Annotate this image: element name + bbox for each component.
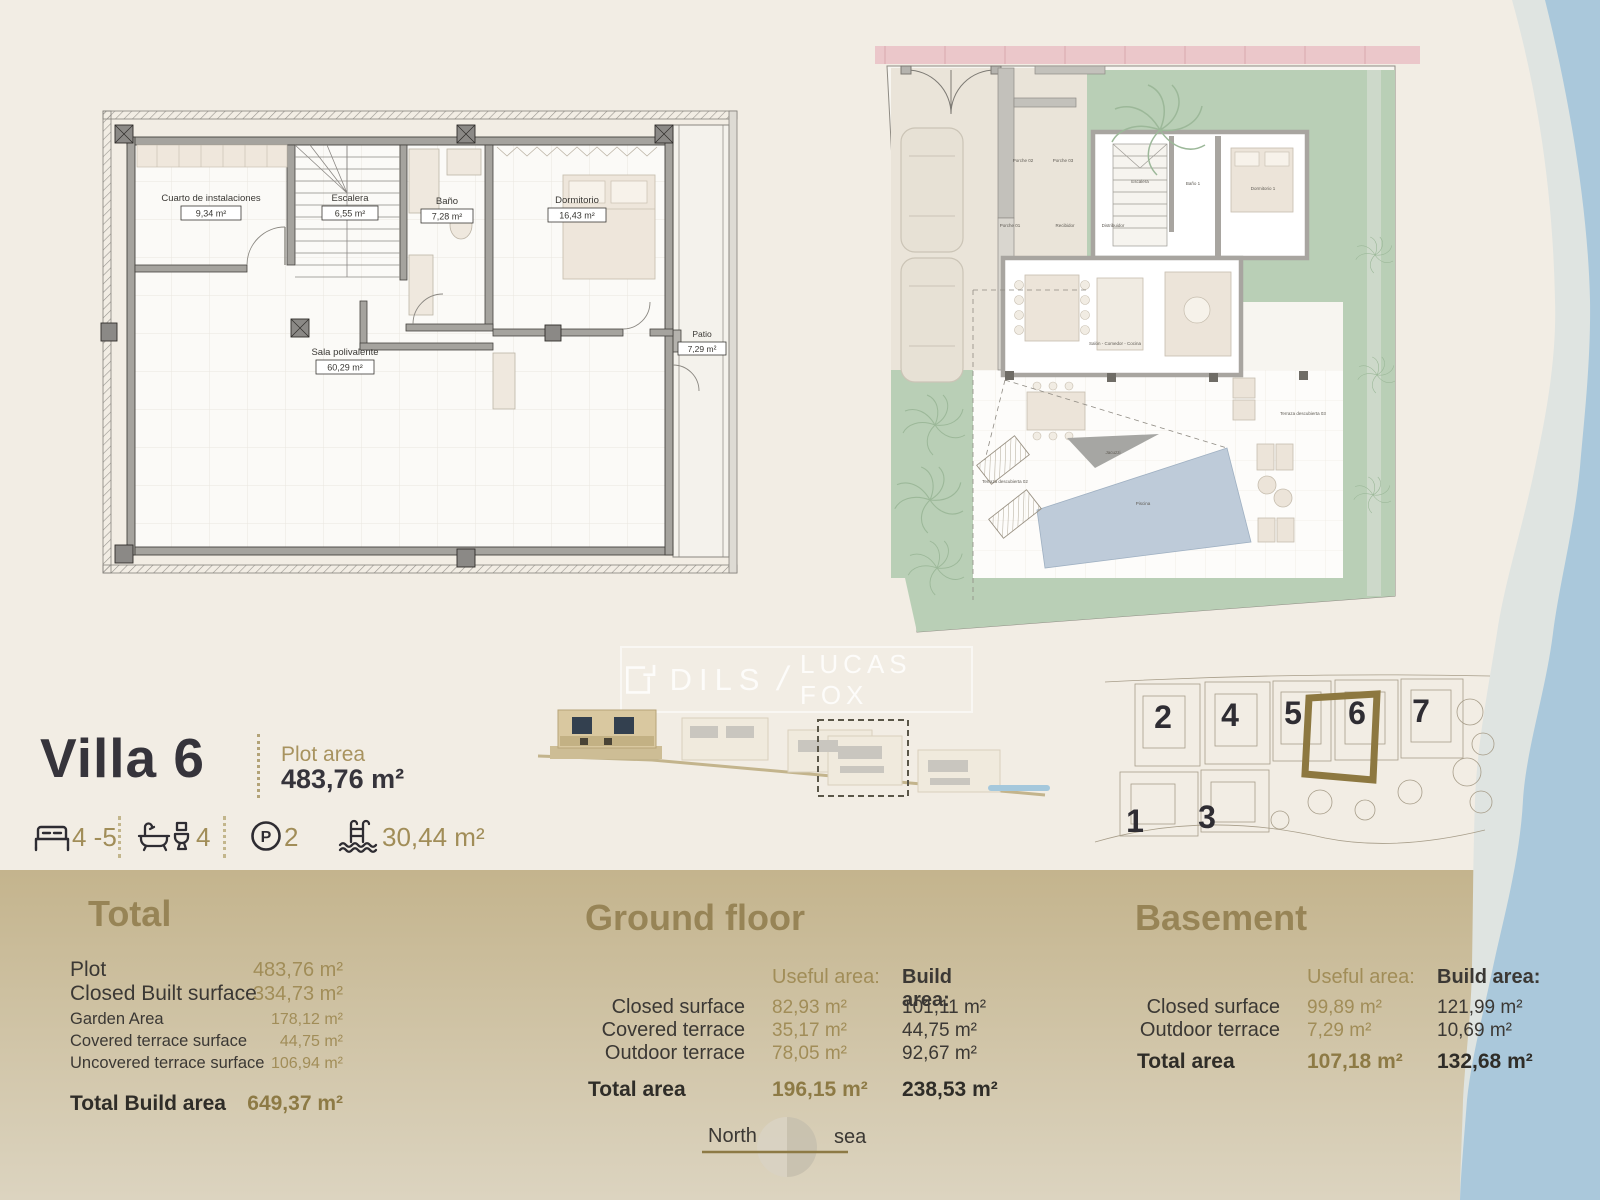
total-row-value: 334,73 m² — [208, 983, 343, 1006]
patio-area — [667, 125, 729, 557]
build-value: 121,99 m² — [1437, 997, 1523, 1019]
total-build-label: Total Build area — [70, 1092, 226, 1116]
svg-text:Piscina: Piscina — [1136, 501, 1151, 506]
svg-text:Escalera: Escalera — [332, 193, 370, 204]
total-row-value: 44,75 m² — [208, 1033, 343, 1051]
svg-text:Cuarto de instalaciones: Cuarto de instalaciones — [161, 193, 261, 204]
svg-text:6: 6 — [1348, 695, 1366, 731]
useful-value: 78,05 m² — [772, 1043, 847, 1065]
baths-value: 4 — [196, 822, 210, 853]
total-row-value: 483,76 m² — [208, 959, 343, 982]
svg-text:Baño: Baño — [436, 196, 458, 207]
brochure-page: Cuarto de instalaciones 9,34 m² Escalera… — [0, 0, 1600, 1200]
villas-elevation — [520, 668, 1050, 803]
svg-text:Porche 01: Porche 01 — [1000, 223, 1021, 228]
svg-text:4: 4 — [1221, 697, 1239, 733]
useful-value: 82,93 m² — [772, 997, 847, 1019]
site-plan: 2 4 5 6 7 1 3 — [1065, 652, 1510, 852]
total-area-label: Total area — [588, 1078, 686, 1102]
svg-text:60,29 m²: 60,29 m² — [327, 363, 363, 373]
total-build-value: 132,68 m² — [1437, 1050, 1533, 1074]
corridor-cabinet — [493, 353, 515, 409]
total-build-value: 238,53 m² — [902, 1078, 998, 1102]
villa6-highlight-box — [1305, 694, 1377, 780]
total-row-label: Plot — [70, 958, 106, 982]
road-strip — [875, 46, 1420, 64]
svg-text:7,28 m²: 7,28 m² — [432, 212, 463, 222]
svg-text:Terraza descubierta 03: Terraza descubierta 03 — [1280, 411, 1326, 416]
svg-text:Baño 1: Baño 1 — [1186, 181, 1201, 186]
svg-text:Porche 03: Porche 03 — [1053, 158, 1074, 163]
total-build-value: 649,37 m² — [208, 1092, 343, 1116]
row-label: Closed surface — [585, 996, 745, 1019]
svg-text:Distribuidor: Distribuidor — [1102, 223, 1125, 228]
total-summary: Total Plot 483,76 m² Closed Built surfac… — [68, 885, 368, 1145]
room-label-sala: Sala polivalente 60,29 m² — [311, 347, 378, 374]
garden-path — [1367, 70, 1381, 596]
feature-divider-1 — [118, 816, 121, 858]
compass-north-label: North — [708, 1125, 757, 1148]
compass: North sea — [672, 1108, 882, 1186]
beds-value: 4 -5 — [72, 822, 117, 853]
total-useful-value: 107,18 m² — [1307, 1050, 1403, 1074]
room-label-dormitorio: Dormitorio 16,43 m² — [548, 195, 606, 222]
svg-text:P: P — [261, 829, 272, 846]
plot-area-value: 483,76 m² — [281, 764, 404, 795]
ground-floor-summary: Ground floor Useful area: Build area: Cl… — [585, 890, 1005, 1120]
compass-sea-label: sea — [834, 1126, 866, 1149]
svg-text:7,29 m²: 7,29 m² — [688, 344, 717, 354]
ground-floor-heading: Ground floor — [585, 897, 805, 939]
page-title: Villa 6 — [40, 726, 205, 790]
useful-value: 7,29 m² — [1307, 1020, 1371, 1042]
row-label: Closed surface — [1135, 996, 1280, 1019]
build-area-header: Build area: — [1437, 966, 1540, 989]
feature-divider-2 — [223, 816, 226, 858]
villa-solid — [550, 710, 662, 759]
row-label: Covered terrace — [585, 1019, 745, 1042]
svg-text:Jacuzzi: Jacuzzi — [1105, 450, 1120, 455]
build-value: 10,69 m² — [1437, 1020, 1512, 1042]
svg-text:2: 2 — [1154, 699, 1172, 735]
build-value: 44,75 m² — [902, 1020, 977, 1042]
svg-text:Dormitorio: Dormitorio — [555, 195, 599, 206]
svg-text:Terraza descubierta 02: Terraza descubierta 02 — [982, 479, 1028, 484]
total-row-value: 178,12 m² — [208, 1011, 343, 1029]
total-row-label: Garden Area — [70, 1010, 164, 1029]
villas-faint — [682, 718, 1000, 792]
total-area-label: Total area — [1137, 1050, 1235, 1074]
svg-text:Sala polivalente: Sala polivalente — [311, 347, 378, 358]
svg-text:Patio: Patio — [692, 329, 712, 339]
sea-water-mark — [988, 785, 1050, 791]
useful-value: 99,89 m² — [1307, 997, 1382, 1019]
basement-summary: Basement Useful area: Build area: Closed… — [1135, 890, 1555, 1110]
row-label: Outdoor terrace — [585, 1042, 745, 1065]
build-value: 92,67 m² — [902, 1043, 977, 1065]
ground-floor-plan: Porche 02 Porche 03 Porche 01 Recibidor … — [875, 40, 1420, 640]
basement-heading: Basement — [1135, 897, 1307, 939]
svg-text:Recibidor: Recibidor — [1055, 223, 1075, 228]
bed-icon — [33, 822, 71, 852]
total-heading: Total — [88, 893, 171, 935]
svg-text:Porche 02: Porche 02 — [1013, 158, 1034, 163]
parking-icon: P — [250, 820, 282, 852]
house-bedroom — [1231, 148, 1293, 212]
svg-text:5: 5 — [1284, 695, 1302, 731]
total-useful-value: 196,15 m² — [772, 1078, 868, 1102]
svg-text:1: 1 — [1126, 803, 1144, 839]
row-label: Outdoor terrace — [1135, 1019, 1280, 1042]
pool-value: 30,44 m² — [382, 822, 485, 853]
useful-area-header: Useful area: — [772, 966, 880, 989]
title-divider — [257, 734, 260, 798]
storage-shelves — [137, 145, 287, 167]
svg-text:7: 7 — [1412, 693, 1430, 729]
total-row-value: 106,94 m² — [208, 1055, 343, 1073]
svg-text:Dormitorio 1: Dormitorio 1 — [1251, 186, 1276, 191]
basement-floor-plan: Cuarto de instalaciones 9,34 m² Escalera… — [95, 105, 745, 580]
house-stairs — [1113, 144, 1167, 246]
parking-value: 2 — [284, 822, 298, 853]
pool-icon — [338, 818, 378, 854]
svg-text:Salón - Comedor - Cocina: Salón - Comedor - Cocina — [1089, 341, 1142, 346]
svg-text:Escalera: Escalera — [1131, 179, 1149, 184]
useful-area-header: Useful area: — [1307, 966, 1415, 989]
svg-text:3: 3 — [1198, 799, 1216, 835]
bath-icon — [137, 820, 191, 852]
svg-text:9,34 m²: 9,34 m² — [196, 209, 227, 219]
svg-text:16,43 m²: 16,43 m² — [559, 211, 595, 221]
svg-text:6,55 m²: 6,55 m² — [335, 209, 366, 219]
build-value: 101,11 m² — [902, 997, 986, 1019]
useful-value: 35,17 m² — [772, 1020, 847, 1042]
